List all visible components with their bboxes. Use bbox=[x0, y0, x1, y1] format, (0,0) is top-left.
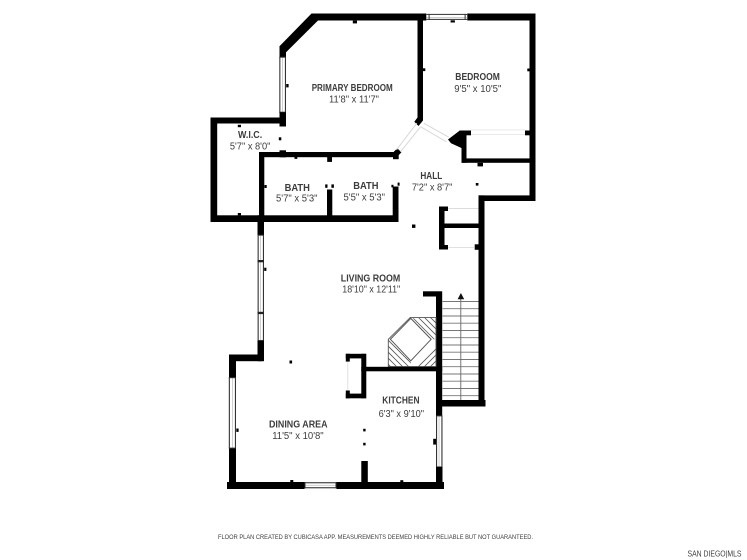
svg-text:KITCHEN: KITCHEN bbox=[382, 396, 419, 407]
svg-text:5'7" x 8'0": 5'7" x 8'0" bbox=[230, 141, 271, 152]
svg-text:HALL: HALL bbox=[420, 171, 442, 182]
svg-text:W.I.C.: W.I.C. bbox=[238, 130, 262, 141]
svg-text:5'5" x 5'3": 5'5" x 5'3" bbox=[344, 192, 386, 203]
svg-text:18'10" x 12'11": 18'10" x 12'11" bbox=[342, 285, 400, 296]
svg-text:6'3" x 9'10": 6'3" x 9'10" bbox=[379, 409, 425, 420]
svg-text:DINING AREA: DINING AREA bbox=[269, 419, 328, 430]
svg-text:SAN DIEGO|MLS: SAN DIEGO|MLS bbox=[688, 549, 742, 558]
svg-text:PRIMARY BEDROOM: PRIMARY BEDROOM bbox=[312, 83, 393, 94]
svg-text:11'5" x 10'8": 11'5" x 10'8" bbox=[272, 431, 324, 442]
svg-text:BATH: BATH bbox=[353, 181, 378, 192]
svg-text:FLOOR PLAN CREATED BY CUBICASA: FLOOR PLAN CREATED BY CUBICASA APP. MEAS… bbox=[218, 534, 533, 541]
svg-text:5'7" x 5'3": 5'7" x 5'3" bbox=[276, 193, 318, 204]
svg-text:LIVING ROOM: LIVING ROOM bbox=[341, 274, 401, 285]
svg-text:11'8" x 11'7": 11'8" x 11'7" bbox=[329, 95, 380, 106]
svg-text:BEDROOM: BEDROOM bbox=[455, 72, 500, 83]
svg-text:9'5" x 10'5": 9'5" x 10'5" bbox=[454, 84, 502, 95]
svg-text:7'2" x 8'7": 7'2" x 8'7" bbox=[412, 182, 453, 193]
